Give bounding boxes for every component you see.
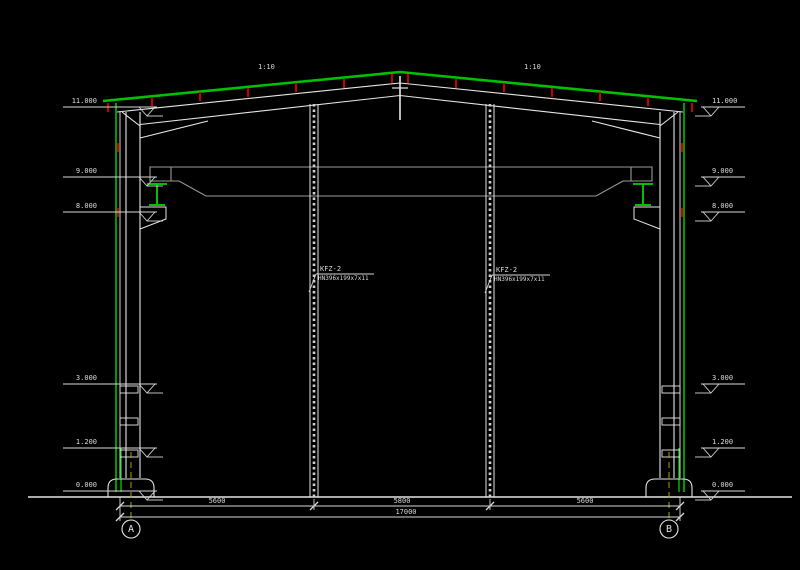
crane-rails	[147, 184, 653, 205]
elevation-label-right-11000: 11.000	[712, 98, 759, 105]
roof-slope-label-left: 1:10	[258, 64, 275, 71]
elevation-label-right-8000: 8.000	[712, 203, 759, 210]
wind-column-section-left: HN396x199x7x11	[318, 276, 369, 282]
dim-total: 17000	[384, 509, 428, 516]
wind-column-name-left: KFZ-2	[320, 266, 341, 273]
wind-column-name-right: KFZ-2	[496, 267, 517, 274]
elevation-label-left-9000: 9.000	[50, 168, 97, 175]
elevation-label-left-0000: 0.000	[50, 482, 97, 489]
drawing-geometry	[0, 0, 800, 570]
elevation-label-right-0000: 0.000	[712, 482, 759, 489]
dim-segment-3: 5600	[563, 498, 607, 505]
elevation-label-left-1200: 1.200	[50, 439, 97, 446]
axis-bubble-b: B	[659, 524, 679, 535]
cad-drawing-canvas[interactable]: 1:10 1:10 11.000 9.000 8.000 3.000 1.200…	[0, 0, 800, 570]
wind-column-section-right: HN396x199x7x11	[494, 277, 545, 283]
elevation-label-right-3000: 3.000	[712, 375, 759, 382]
elevation-label-right-9000: 9.000	[712, 168, 759, 175]
elevation-label-left-11000: 11.000	[50, 98, 97, 105]
elevation-label-right-1200: 1.200	[712, 439, 759, 446]
elevation-label-left-8000: 8.000	[50, 203, 97, 210]
axis-bubbles	[122, 520, 678, 538]
wind-column-right	[486, 104, 494, 497]
wind-column-left	[310, 104, 318, 497]
ridge-detail	[392, 76, 408, 120]
right-column	[646, 103, 692, 497]
elevation-label-left-3000: 3.000	[50, 375, 97, 382]
axis-bubble-a: A	[121, 524, 141, 535]
dim-segment-1: 5600	[195, 498, 239, 505]
crane-bridge-girder	[150, 167, 652, 196]
column-corbels	[140, 207, 660, 229]
left-column	[108, 103, 154, 497]
roof-slope-label-right: 1:10	[524, 64, 541, 71]
dim-segment-2: 5800	[380, 498, 424, 505]
